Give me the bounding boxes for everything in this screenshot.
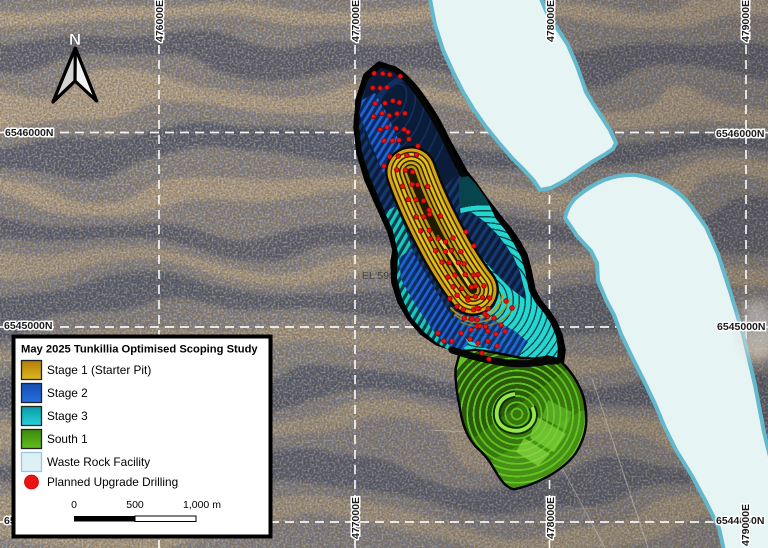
svg-text:478000E: 478000E [545, 0, 557, 42]
svg-text:477000E: 477000E [350, 0, 362, 42]
svg-text:479000E: 479000E [740, 504, 752, 546]
svg-text:478000E: 478000E [545, 497, 557, 539]
svg-text:6546000N: 6546000N [5, 127, 53, 139]
svg-text:Stage 2: Stage 2 [47, 386, 88, 400]
svg-text:South 1: South 1 [47, 432, 88, 446]
svg-text:6545000N: 6545000N [717, 321, 765, 333]
svg-text:479000E: 479000E [740, 0, 752, 42]
svg-text:6545000N: 6545000N [4, 320, 52, 332]
svg-text:6546000N: 6546000N [716, 128, 764, 140]
svg-text:500: 500 [126, 499, 144, 511]
svg-text:1,000 m: 1,000 m [183, 499, 221, 511]
svg-text:Stage 3: Stage 3 [47, 409, 88, 423]
svg-text:Planned Upgrade Drilling: Planned Upgrade Drilling [47, 475, 178, 489]
svg-text:477000E: 477000E [350, 497, 362, 539]
svg-text:0: 0 [71, 499, 77, 511]
svg-text:Stage 1 (Starter Pit): Stage 1 (Starter Pit) [47, 363, 151, 377]
svg-text:N: N [69, 30, 81, 49]
svg-text:476000E: 476000E [154, 0, 166, 42]
svg-text:EL 590: EL 590 [362, 270, 395, 282]
svg-text:Waste Rock Facility: Waste Rock Facility [47, 455, 150, 469]
svg-text:May 2025 Tunkillia Optimised S: May 2025 Tunkillia Optimised Scoping Stu… [21, 344, 258, 356]
